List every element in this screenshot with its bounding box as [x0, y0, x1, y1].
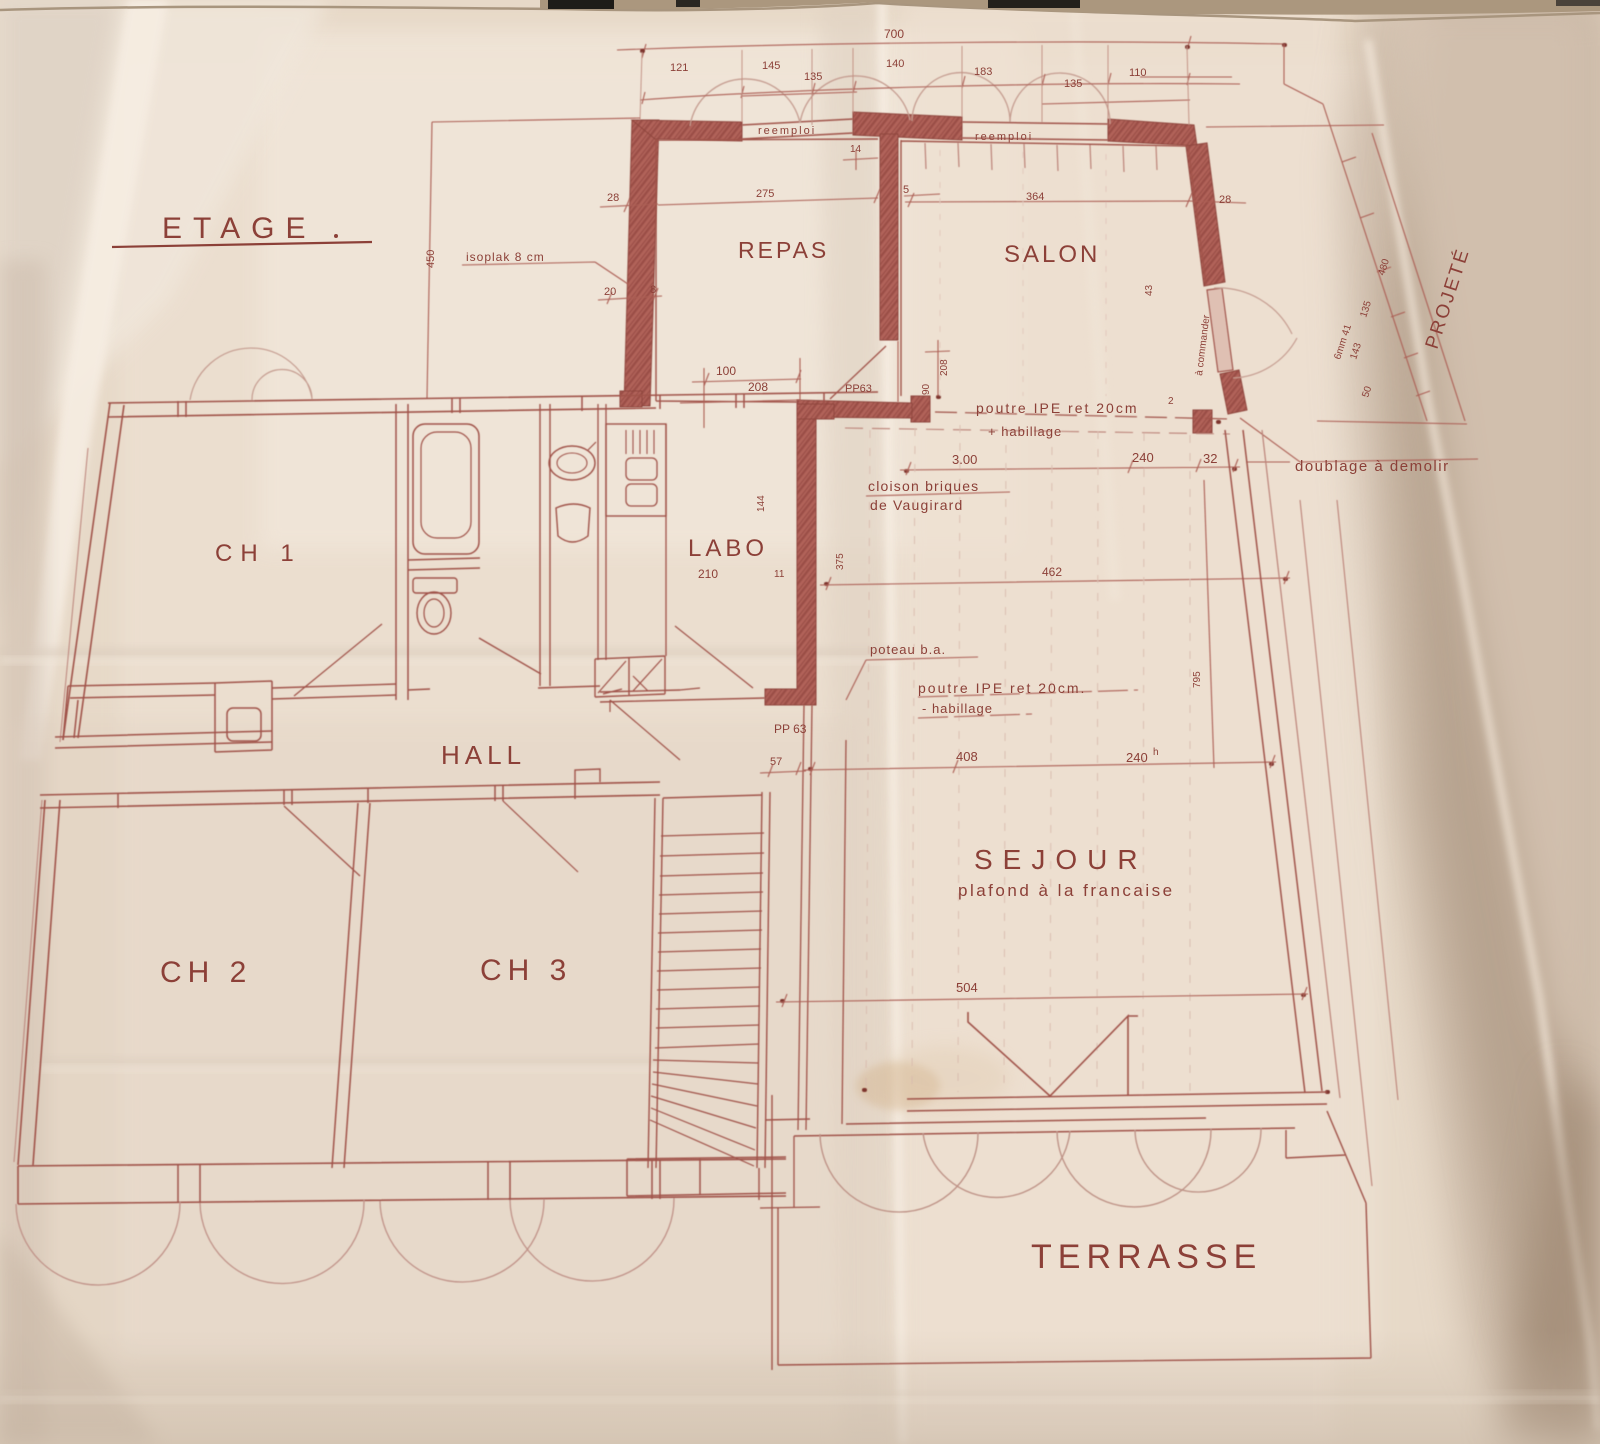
svg-text:8: 8: [650, 284, 656, 296]
svg-text:183: 183: [974, 66, 992, 78]
svg-text:poteau b.a.: poteau b.a.: [870, 642, 946, 657]
svg-text:43: 43: [1144, 284, 1155, 296]
svg-text:SALON: SALON: [1004, 241, 1100, 268]
svg-text:57: 57: [770, 756, 782, 768]
svg-text:450: 450: [425, 250, 437, 268]
svg-text:14: 14: [850, 144, 862, 155]
svg-text:+ habillage: + habillage: [988, 424, 1062, 439]
svg-text:135: 135: [1064, 78, 1082, 90]
svg-text:110: 110: [1129, 67, 1147, 79]
svg-text:ETAGE: ETAGE: [162, 212, 316, 245]
svg-text:5: 5: [903, 184, 909, 196]
svg-text:140: 140: [886, 58, 904, 70]
svg-text:reemploi: reemploi: [758, 125, 816, 137]
svg-text:reemploi: reemploi: [975, 131, 1033, 143]
svg-text:3.00: 3.00: [952, 452, 977, 467]
svg-text:240: 240: [1132, 450, 1154, 465]
svg-text:408: 408: [956, 749, 978, 764]
svg-text:364: 364: [1026, 191, 1044, 203]
svg-text:HALL: HALL: [441, 740, 526, 770]
svg-text:REPAS: REPAS: [738, 237, 829, 263]
svg-text:PP63: PP63: [845, 383, 872, 395]
svg-text:h: h: [1153, 747, 1159, 758]
svg-text:28: 28: [607, 192, 619, 204]
svg-text:CH 3: CH 3: [480, 954, 572, 987]
svg-text:- habillage: - habillage: [922, 701, 993, 716]
svg-text:28: 28: [1219, 194, 1231, 206]
svg-text:20: 20: [604, 286, 616, 298]
svg-text:240: 240: [1126, 750, 1148, 765]
svg-text:90: 90: [921, 383, 932, 395]
svg-text:TERRASSE: TERRASSE: [1031, 1238, 1262, 1276]
svg-text:275: 275: [756, 188, 774, 200]
svg-text:100: 100: [716, 364, 736, 378]
svg-text:700: 700: [884, 27, 904, 41]
svg-text:32: 32: [1203, 451, 1217, 466]
svg-text:CH 1: CH 1: [215, 540, 302, 567]
svg-text:de Vaugirard: de Vaugirard: [870, 497, 964, 513]
svg-text:144: 144: [756, 495, 767, 512]
svg-text:poutre IPE ret 20cm: poutre IPE ret 20cm: [976, 400, 1139, 416]
svg-text:208: 208: [939, 359, 950, 376]
svg-text:135: 135: [804, 71, 822, 83]
svg-text:504: 504: [956, 980, 978, 995]
svg-text:PP 63: PP 63: [774, 722, 807, 736]
svg-text:11: 11: [774, 569, 785, 580]
svg-text:375: 375: [835, 553, 846, 570]
svg-text:208: 208: [748, 380, 768, 394]
svg-text:795: 795: [1192, 671, 1203, 688]
svg-text:210: 210: [698, 567, 718, 581]
svg-text:doublage à demolir: doublage à demolir: [1295, 458, 1450, 475]
svg-text:2: 2: [1168, 396, 1174, 407]
svg-text:LABO: LABO: [688, 535, 768, 562]
svg-text:121: 121: [670, 62, 688, 74]
svg-text:poutre IPE ret 20cm.: poutre IPE ret 20cm.: [918, 680, 1086, 696]
svg-text:CH 2: CH 2: [160, 956, 252, 989]
svg-text:isoplak 8 cm: isoplak 8 cm: [466, 250, 545, 264]
svg-text:SEJOUR: SEJOUR: [974, 844, 1148, 875]
svg-text:462: 462: [1042, 565, 1062, 579]
svg-text:cloison briques: cloison briques: [868, 478, 979, 494]
svg-text:145: 145: [762, 60, 780, 72]
svg-text:plafond à la francaise: plafond à la francaise: [958, 881, 1175, 900]
